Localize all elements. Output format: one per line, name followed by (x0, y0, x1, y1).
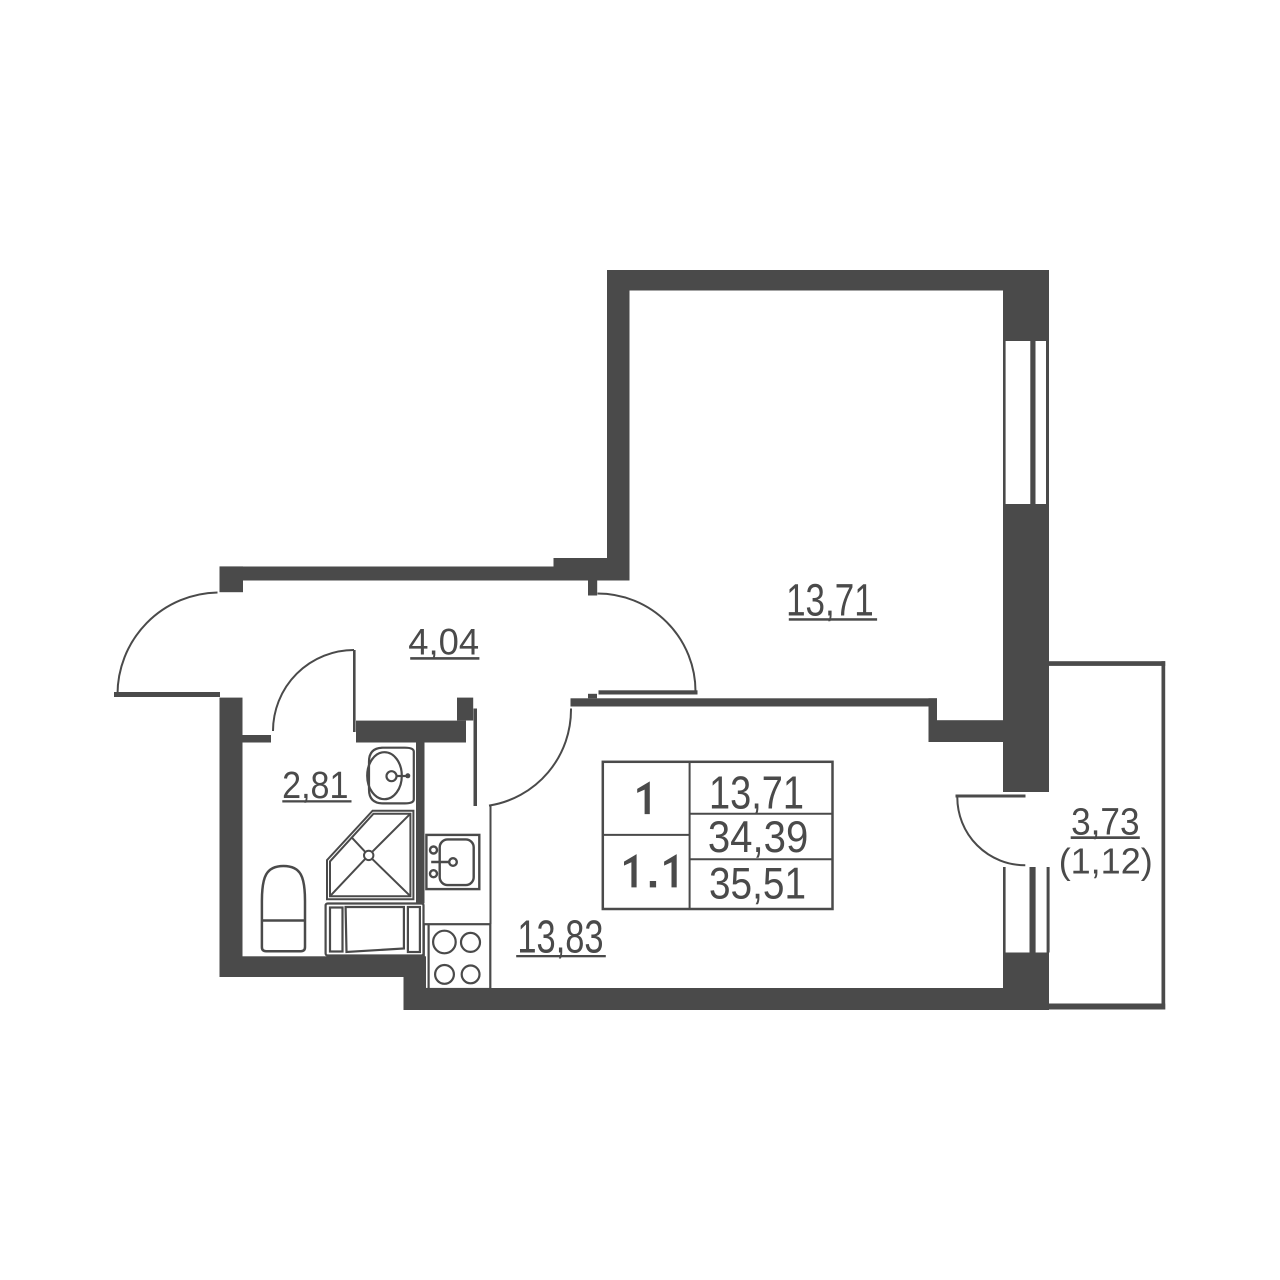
svg-text:35,51: 35,51 (709, 860, 806, 909)
svg-text:13,71: 13,71 (709, 766, 804, 818)
svg-text:13,71: 13,71 (786, 575, 874, 626)
svg-text:13,83: 13,83 (517, 911, 603, 963)
svg-text:4,04: 4,04 (408, 622, 479, 663)
svg-text:34,39: 34,39 (708, 813, 809, 862)
svg-text:(1,12): (1,12) (1059, 841, 1153, 882)
